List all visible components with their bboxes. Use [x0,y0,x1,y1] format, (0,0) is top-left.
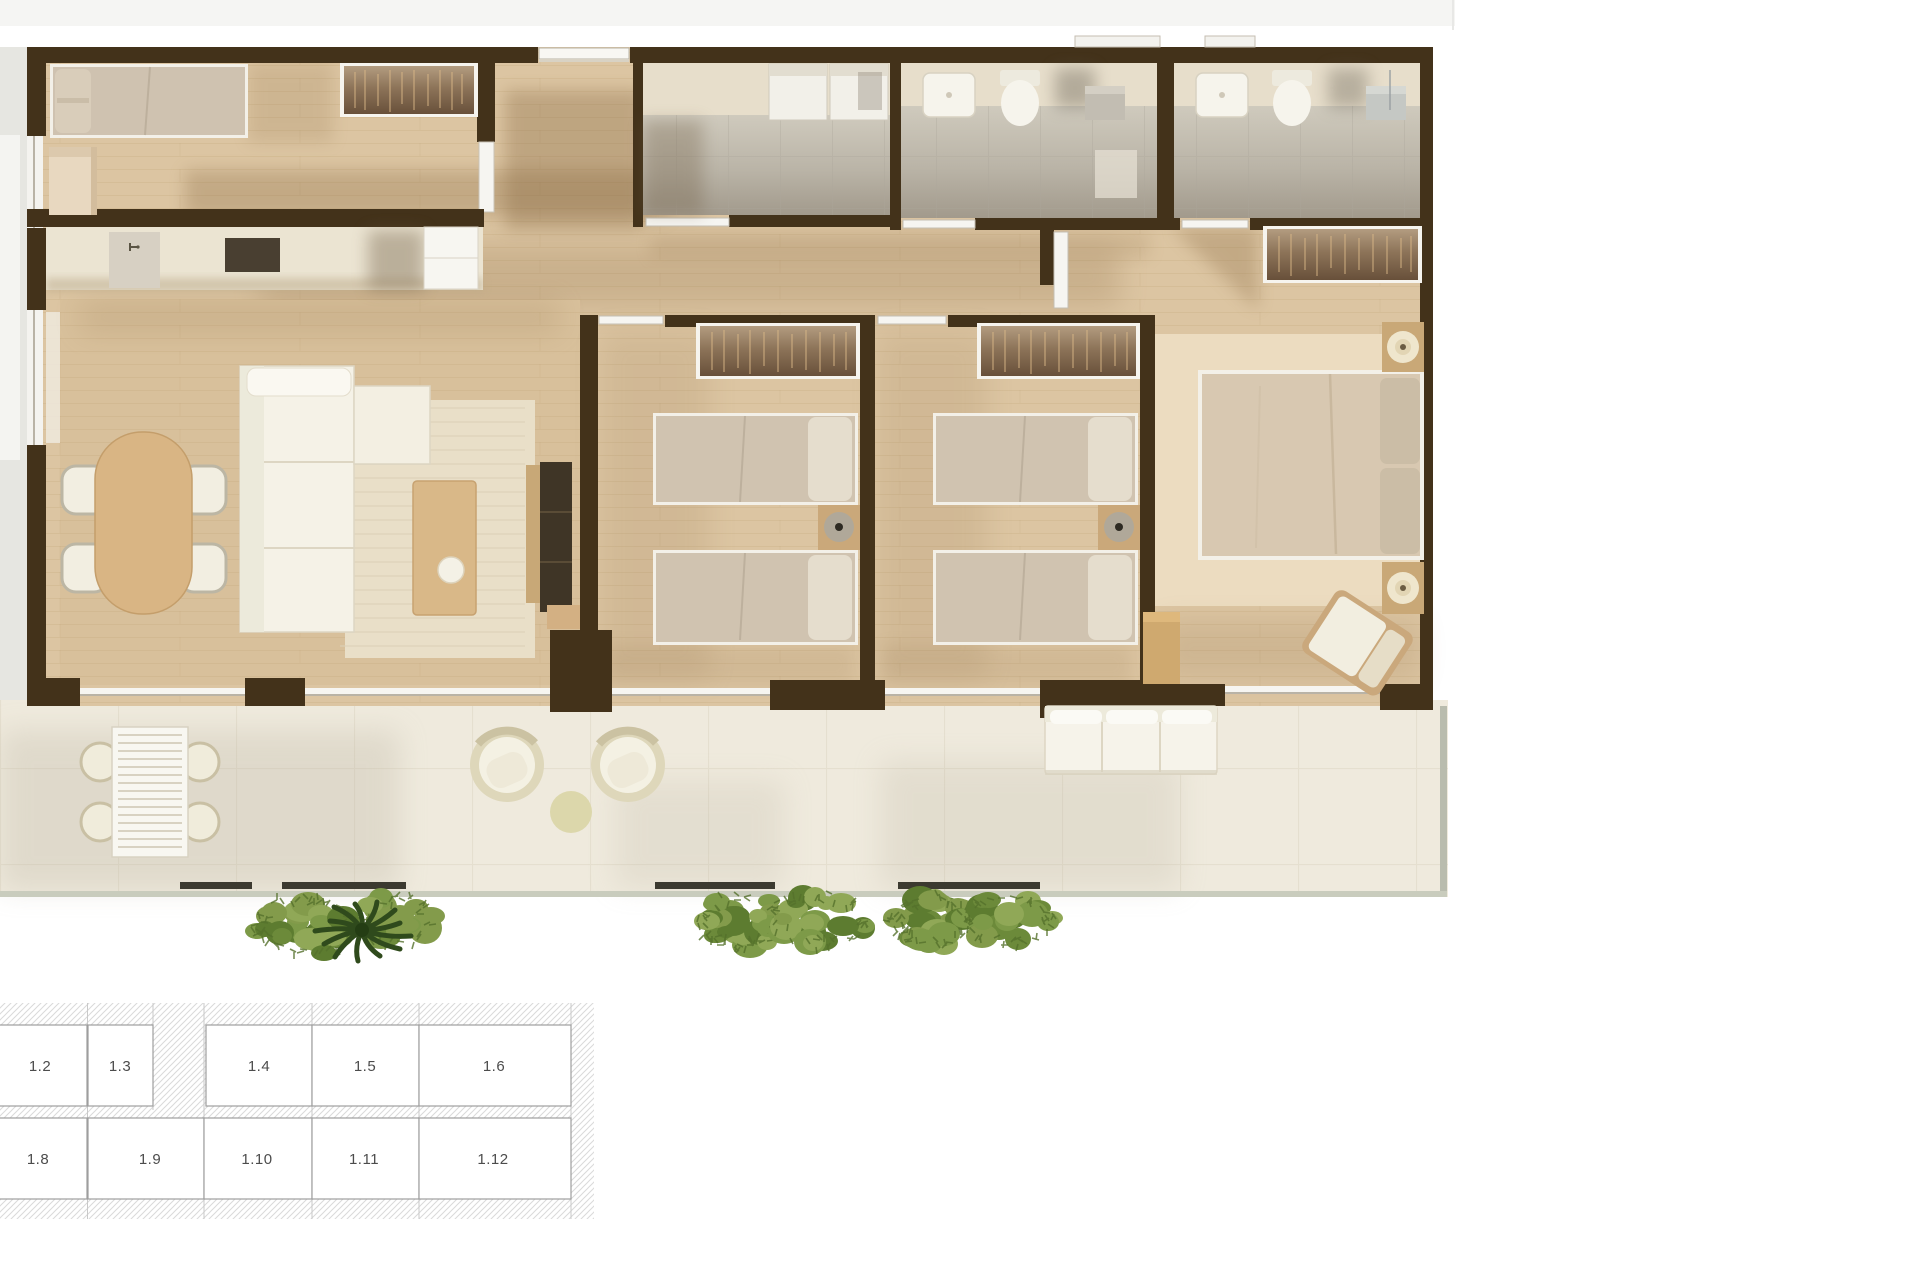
svg-text:1.11: 1.11 [349,1151,379,1168]
svg-text:1.4: 1.4 [248,1058,270,1075]
svg-text:1.9: 1.9 [139,1151,161,1168]
svg-text:1.12: 1.12 [477,1151,508,1168]
svg-text:1.2: 1.2 [29,1058,51,1075]
svg-text:1.6: 1.6 [483,1058,505,1075]
svg-text:1.10: 1.10 [241,1151,272,1168]
svg-text:1.5: 1.5 [354,1058,376,1075]
svg-text:1.3: 1.3 [109,1058,131,1075]
svg-text:1.8: 1.8 [27,1151,49,1168]
